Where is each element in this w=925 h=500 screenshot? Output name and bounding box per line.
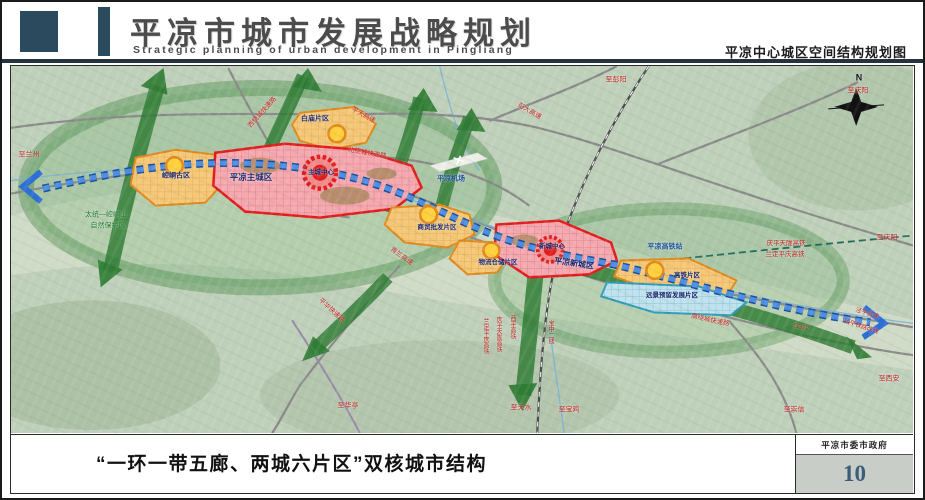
planning-map: N至兰州西绕城快速路平天高速彭大高速至彭阳至庆阳北绕城快速路青兰高速平华快速路至… (11, 66, 913, 433)
page-number: 10 (796, 455, 913, 493)
map-label: 白庙片区 (301, 116, 329, 123)
map-label: 至西安 (879, 376, 900, 383)
map-label: 平天高速 (350, 107, 376, 125)
map-label: 平华快速路 (317, 298, 346, 325)
map-label: 至庆阳 (877, 235, 898, 242)
page-subtitle: Strategic planning of urban development … (133, 44, 514, 56)
map-label: 平凉新城区 (554, 257, 595, 270)
logo-bar (98, 7, 110, 56)
map-label: 宝中二线 (547, 320, 553, 344)
map-labels-layer: N至兰州西绕城快速路平天高速彭大高速至彭阳至庆阳北绕城快速路青兰高速平华快速路至… (11, 66, 913, 433)
map-label: 至华亭 (338, 403, 359, 410)
map-label: 至崇信 (784, 407, 805, 414)
footer-band: “一环一带五廊、两城六片区”双核城市结构 平凉市委市政府 10 (11, 434, 913, 493)
header-rule (2, 59, 923, 63)
map-label: 太统—崆峒山 (85, 212, 127, 219)
figure-caption: “一环一带五廊、两城六片区”双核城市结构 (96, 449, 487, 476)
map-label: 北绕城快速路 (347, 147, 387, 160)
map-label: 庆平天陇高铁 (495, 316, 501, 352)
map-label: 物流仓储片区 (479, 260, 518, 267)
map-label: 平凉高铁站 (648, 244, 683, 251)
map-label: 至庆阳 (848, 88, 869, 95)
map-label: 兰定平庆高铁 (482, 318, 488, 354)
map-label: 庆平天陇高铁 (767, 241, 806, 248)
map-label: 西平铁路改线 (843, 319, 879, 336)
map-label: 青兰高速 (389, 247, 414, 268)
map-label: 主城中心 (308, 170, 334, 177)
map-label: 彭大高速 (516, 103, 542, 122)
map-label: 至天水 (511, 405, 532, 412)
map-label: 至彭阳 (606, 77, 627, 84)
stamp-box: 平凉市委市政府 10 (795, 435, 913, 493)
content-frame: N至兰州西绕城快速路平天高速彭大高速至彭阳至庆阳北绕城快速路青兰高速平华快速路至… (10, 65, 915, 494)
map-label: 新城中心 (539, 244, 565, 251)
page: 平凉市城市发展战略规划 Strategic planning of urban … (0, 0, 925, 500)
map-label: 兰定平庆高铁 (766, 252, 805, 259)
logo-square (20, 11, 58, 52)
map-label: 西平高铁 (509, 315, 515, 339)
map-label: 平凉机场 (437, 176, 465, 183)
map-label: 西绕城快速路 (248, 96, 279, 129)
map-label: 南绕城快速路 (690, 314, 729, 328)
map-label: 至兰州 (19, 152, 40, 159)
map-label: 高铁片区 (674, 273, 700, 280)
map-label: 远景预留发展片区 (646, 293, 698, 300)
map-label: 自然保护区 (91, 223, 126, 230)
map-label: 平凉主城区 (230, 173, 273, 182)
map-label: 商贸批发片区 (418, 225, 457, 232)
map-label: 泾平高速 (855, 307, 880, 320)
map-label: 崆峒古区 (162, 173, 190, 180)
header: 平凉市城市发展战略规划 Strategic planning of urban … (2, 2, 923, 58)
stamp-org: 平凉市委市政府 (796, 435, 913, 455)
map-label: N (856, 74, 863, 83)
map-label: G312 (793, 323, 810, 333)
map-label: 至宝鸡 (559, 407, 580, 414)
